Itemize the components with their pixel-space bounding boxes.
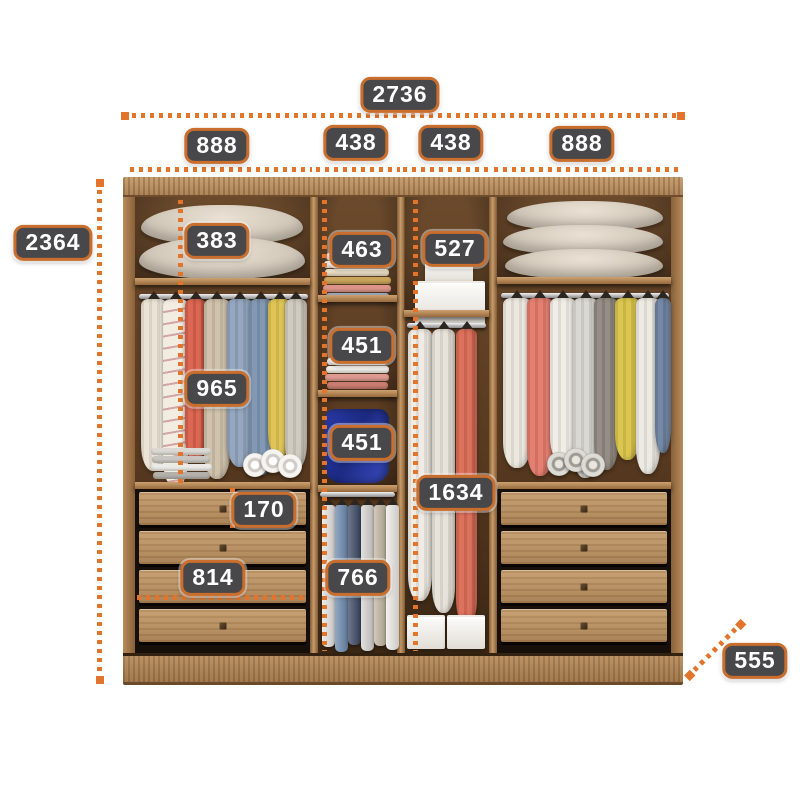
- dimension-line-left-interior: [178, 200, 183, 483]
- dimension-label-section-mid-right: 438: [418, 125, 483, 161]
- dimension-label-left-top-shelf: 383: [184, 223, 249, 259]
- drawer: [501, 609, 667, 642]
- dimension-label-drawer-width: 814: [180, 560, 245, 596]
- dimension-label-right-top-shelf: 527: [422, 231, 487, 267]
- hanging-clothes-right: [497, 197, 671, 487]
- dimension-line-section-right: [494, 167, 678, 172]
- garment: [285, 299, 307, 469]
- dimension-line-section-left: [130, 167, 312, 172]
- drawer-knob: [219, 544, 226, 551]
- towel-roll: [278, 454, 302, 478]
- dimension-label-depth: 555: [722, 643, 787, 679]
- drawer: [501, 570, 667, 603]
- right-drawer-unit: [497, 489, 671, 653]
- drawer: [139, 609, 306, 642]
- white-box: [447, 615, 485, 649]
- dimension-label-drawer-height: 170: [231, 492, 296, 528]
- dimension-label-left-hanging: 965: [184, 371, 249, 407]
- dimension-line-section-mid-right: [403, 167, 490, 172]
- wardrobe-right-panel: [671, 197, 683, 653]
- shelf-board: [135, 482, 310, 489]
- drawer-knob: [581, 544, 588, 551]
- dimension-label-mid-shelf-1: 451: [329, 328, 394, 364]
- divider-3: [489, 197, 497, 653]
- dimension-label-long-hanging: 1634: [416, 475, 495, 511]
- drawer-knob: [219, 622, 226, 629]
- dimension-label-mid-top-shelf: 463: [329, 232, 394, 268]
- drawer-knob: [581, 622, 588, 629]
- drawer: [501, 492, 667, 525]
- dimension-label-section-right: 888: [549, 126, 614, 162]
- garment: [432, 329, 455, 613]
- wardrobe-top-panel: [123, 177, 683, 197]
- wardrobe-base-shadow: [123, 682, 683, 685]
- wardrobe-base: [123, 656, 683, 682]
- dimension-label-pants-rail: 766: [325, 560, 390, 596]
- drawer-knob: [219, 505, 226, 512]
- towel-roll: [581, 453, 605, 477]
- shelf-board: [497, 482, 671, 489]
- dimension-label-total-height: 2364: [13, 225, 92, 261]
- wardrobe-dimension-diagram: 2736 888 438 438 888 2364 383 463 527 96…: [0, 0, 800, 800]
- drawer: [501, 531, 667, 564]
- dimension-label-total-width: 2736: [360, 77, 439, 113]
- dimension-label-mid-shelf-2: 451: [329, 425, 394, 461]
- garment: [655, 298, 671, 453]
- dimension-label-section-mid-left: 438: [323, 125, 388, 161]
- drawer-knob: [581, 505, 588, 512]
- wardrobe-left-panel: [123, 197, 135, 653]
- dimension-line-mid-right-interior: [413, 200, 418, 651]
- dimension-line-total-width: [123, 113, 683, 118]
- rolled-towels: [243, 449, 303, 479]
- dimension-line-total-height: [97, 181, 102, 682]
- dimension-label-section-left: 888: [184, 128, 249, 164]
- divider-1: [310, 197, 318, 653]
- drawer-knob: [581, 583, 588, 590]
- dimension-line-section-mid-left: [316, 167, 400, 172]
- garment: [408, 329, 432, 601]
- rolled-towels: [547, 447, 607, 479]
